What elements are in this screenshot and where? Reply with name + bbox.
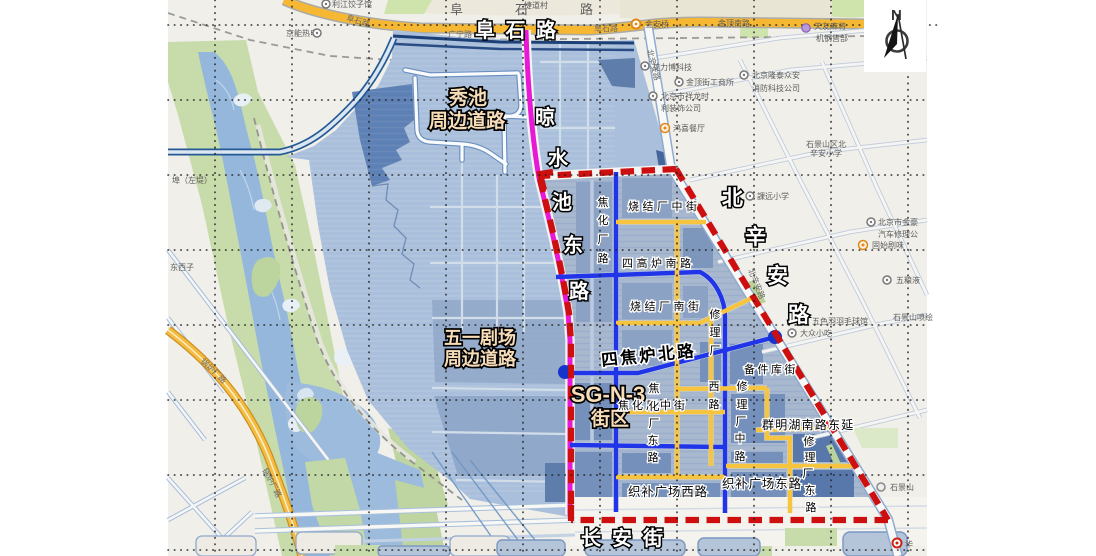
svg-text:五一剧场: 五一剧场 <box>444 328 516 348</box>
svg-text:池: 池 <box>552 191 572 214</box>
svg-text:辛: 辛 <box>745 225 766 249</box>
svg-text:北京隆泰众安: 北京隆泰众安 <box>752 70 800 80</box>
svg-text:路: 路 <box>569 279 590 303</box>
svg-text:路: 路 <box>598 252 609 265</box>
svg-text:大众小吃: 大众小吃 <box>800 328 832 338</box>
svg-text:理: 理 <box>737 398 748 411</box>
svg-text:阜石路: 阜石路 <box>594 23 618 33</box>
svg-text:安: 安 <box>767 264 788 288</box>
svg-text:厂: 厂 <box>803 468 814 480</box>
svg-text:水: 水 <box>548 147 569 170</box>
svg-text:晾: 晾 <box>535 105 555 129</box>
svg-text:鸿喜餐厅: 鸿喜餐厅 <box>673 123 705 133</box>
svg-text:金安桥: 金安桥 <box>645 19 669 29</box>
svg-text:北: 北 <box>722 187 743 210</box>
svg-text:阜: 阜 <box>450 2 463 17</box>
svg-text:利江饺子馆: 利江饺子馆 <box>332 0 372 9</box>
svg-text:西: 西 <box>709 381 720 393</box>
svg-text:阜石路: 阜石路 <box>475 18 567 42</box>
svg-text:周边道路: 周边道路 <box>429 109 506 132</box>
svg-text:修: 修 <box>710 307 721 321</box>
svg-text:织补广场东路: 织补广场东路 <box>722 476 802 491</box>
svg-text:埠（左堤）: 埠（左堤） <box>172 175 212 185</box>
svg-text:利装饰公司: 利装饰公司 <box>661 103 701 113</box>
svg-text:汽车修理公: 汽车修理公 <box>878 229 918 239</box>
svg-text:广宁路: 广宁路 <box>448 29 472 39</box>
svg-text:华: 华 <box>905 539 913 549</box>
svg-text:群明湖南路东延: 群明湖南路东延 <box>762 417 854 432</box>
svg-text:焦: 焦 <box>598 196 609 209</box>
svg-text:五粮液: 五粮液 <box>896 275 920 285</box>
svg-text:东: 东 <box>563 233 583 257</box>
svg-text:路: 路 <box>806 501 817 514</box>
svg-text:理: 理 <box>710 326 721 339</box>
svg-text:課远小学: 課远小学 <box>757 191 789 201</box>
svg-text:厂: 厂 <box>598 234 609 246</box>
svg-text:石景山区北: 石景山区北 <box>806 139 846 149</box>
svg-text:化: 化 <box>649 399 660 413</box>
svg-text:厂: 厂 <box>710 345 721 357</box>
svg-text:东: 东 <box>805 484 816 497</box>
svg-text:消防科技公司: 消防科技公司 <box>752 83 800 93</box>
svg-text:长安街: 长安街 <box>581 526 674 550</box>
svg-text:厂: 厂 <box>736 416 747 428</box>
svg-text:石景山: 石景山 <box>890 482 914 492</box>
svg-text:东西子: 东西子 <box>170 262 194 272</box>
svg-text:天友麻将: 天友麻将 <box>814 21 846 31</box>
svg-text:石景山喷绘: 石景山喷绘 <box>893 312 933 322</box>
svg-text:路: 路 <box>735 450 746 463</box>
svg-text:五色羽羽毛球馆: 五色羽羽毛球馆 <box>812 316 868 326</box>
svg-text:秀池: 秀池 <box>448 86 487 109</box>
svg-text:化: 化 <box>598 213 609 227</box>
svg-text:固始剧味: 固始剧味 <box>872 240 904 250</box>
svg-text:路: 路 <box>648 451 659 464</box>
svg-text:北京市祥龙时: 北京市祥龙时 <box>661 91 709 101</box>
svg-text:修: 修 <box>804 434 815 448</box>
svg-text:备件库街: 备件库街 <box>744 362 798 376</box>
svg-text:织补广场西路: 织补广场西路 <box>628 484 708 499</box>
svg-text:理: 理 <box>805 451 816 464</box>
svg-text:路: 路 <box>580 2 593 17</box>
svg-text:机钢售部: 机钢售部 <box>816 33 848 43</box>
svg-text:周边道路: 周边道路 <box>444 348 517 369</box>
svg-text:中: 中 <box>735 432 746 445</box>
svg-text:东: 东 <box>648 434 659 447</box>
svg-text:烧结厂中街: 烧结厂中街 <box>628 199 701 213</box>
svg-text:厂: 厂 <box>649 418 660 430</box>
svg-text:石: 石 <box>515 2 528 17</box>
svg-text:北京市金豪: 北京市金豪 <box>878 217 918 227</box>
svg-text:金顶街工商所: 金顶街工商所 <box>686 77 734 87</box>
svg-text:烧结厂南街: 烧结厂南街 <box>630 299 703 313</box>
svg-text:焦: 焦 <box>649 382 660 395</box>
svg-text:路: 路 <box>788 303 810 327</box>
svg-text:金顶南路: 金顶南路 <box>718 18 750 28</box>
svg-text:路: 路 <box>709 398 720 411</box>
svg-text:四高炉南路: 四高炉南路 <box>622 256 695 270</box>
svg-text:辛安小学: 辛安小学 <box>810 148 842 158</box>
svg-text:修: 修 <box>737 379 748 393</box>
